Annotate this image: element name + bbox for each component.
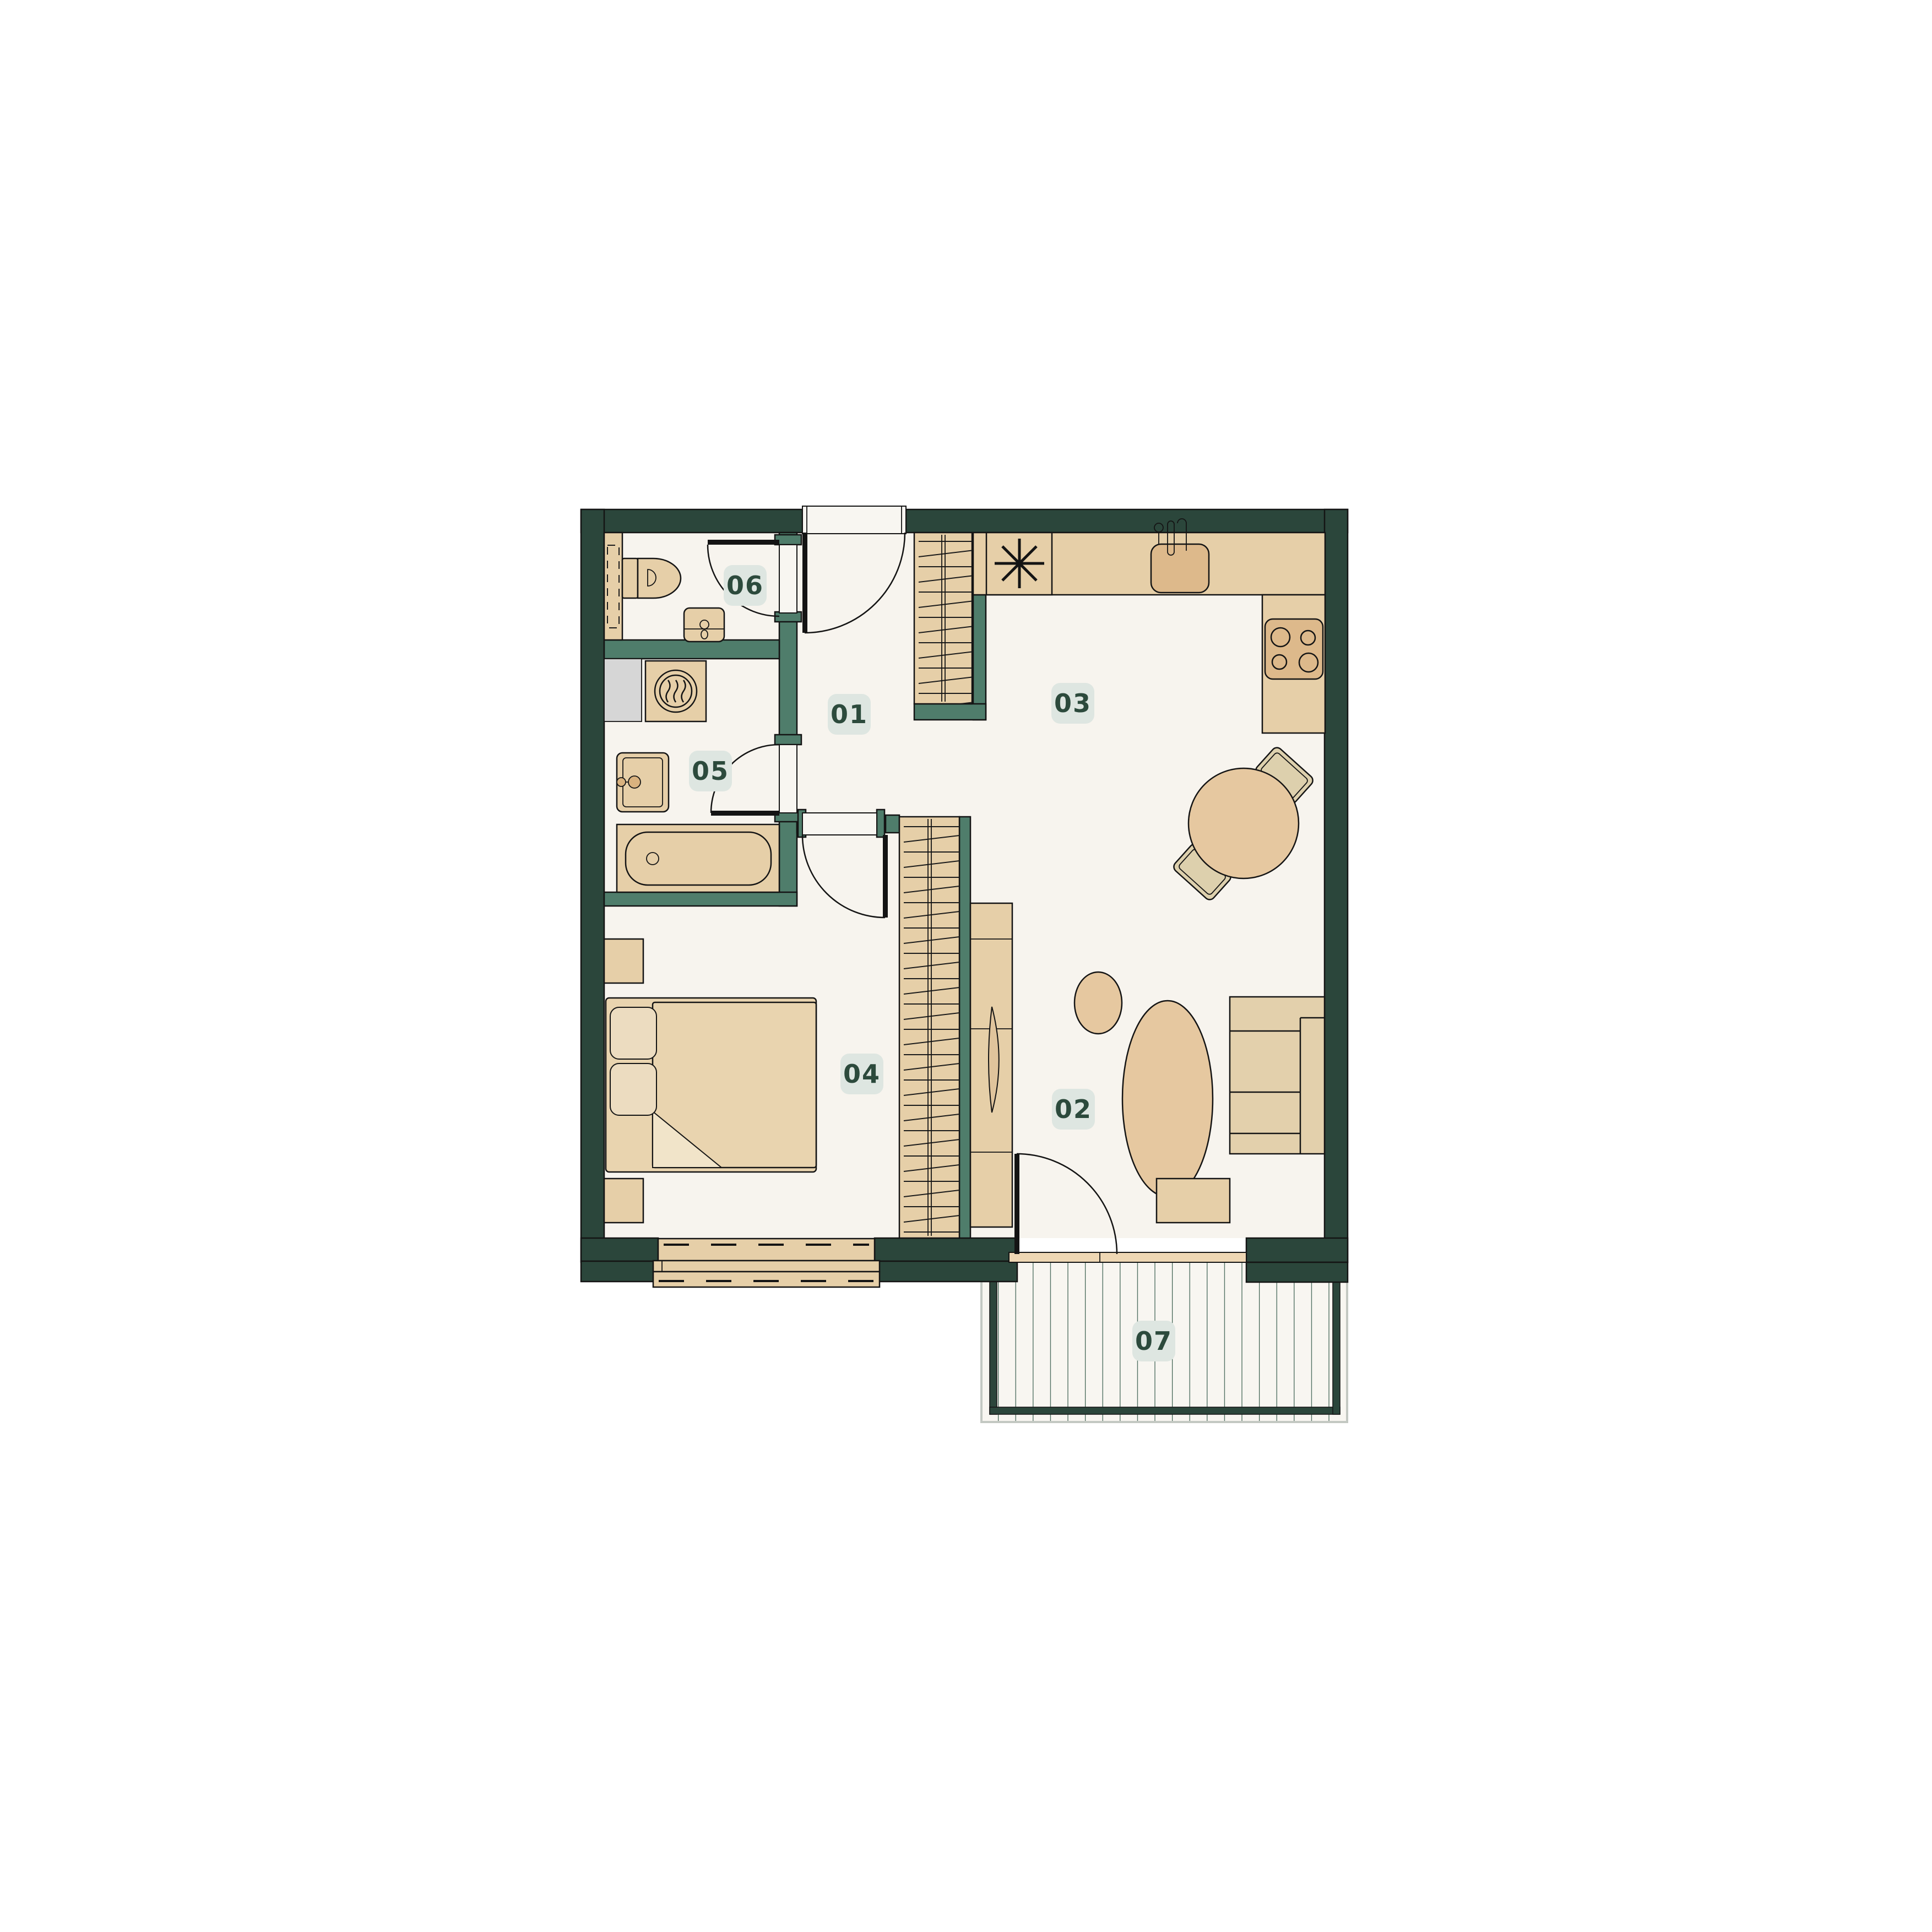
wall-segment — [581, 1238, 658, 1261]
tv-unit-icon — [970, 903, 1012, 1227]
door-leaf — [708, 540, 779, 545]
toilet-tank — [622, 558, 638, 598]
label-text: 06 — [726, 571, 764, 600]
kitchen-sink-basin — [1151, 544, 1209, 593]
partition-segment — [973, 595, 986, 720]
fridge-icon — [986, 533, 1052, 595]
floor-plan: 01 02 03 04 05 06 07 — [0, 0, 1932, 1932]
dining-table-icon — [1188, 768, 1299, 878]
shaft-gray — [604, 659, 642, 721]
room-label-02: 02 — [1052, 1089, 1095, 1130]
door-opening — [802, 813, 877, 835]
wall-segment — [906, 509, 1348, 533]
partition-segment — [604, 892, 797, 906]
door-opening — [779, 745, 797, 813]
door-leaf — [711, 811, 779, 816]
partition-segment — [779, 613, 797, 745]
window-sill-upper — [658, 1239, 875, 1261]
pouf-icon — [1074, 972, 1122, 1034]
wall-segment — [1325, 509, 1348, 1262]
window-sill-lower — [653, 1272, 880, 1287]
wardrobe-hatch — [899, 817, 959, 1238]
stove-icon — [1265, 619, 1323, 679]
washbasin-cabinet-icon — [684, 608, 724, 642]
wardrobe-hatch — [914, 533, 972, 704]
bedroom-window — [653, 1239, 880, 1287]
door-leaf — [883, 835, 888, 918]
label-text: 02 — [1055, 1094, 1092, 1124]
sink-knob — [628, 776, 641, 788]
room-label-05: 05 — [689, 751, 732, 791]
label-text: 04 — [843, 1059, 881, 1089]
balcony-threshold — [1009, 1252, 1246, 1262]
label-text: 01 — [831, 699, 868, 729]
sofa-body — [1230, 997, 1325, 1154]
partition-segment — [886, 815, 899, 833]
balcony-railing-left — [990, 1262, 997, 1414]
window-sill-mid — [653, 1261, 880, 1272]
pillow — [610, 1007, 656, 1059]
bathtub-outer — [617, 824, 779, 892]
room-label-01: 01 — [828, 694, 871, 735]
bathtub-icon — [617, 824, 779, 892]
balcony-railing-bottom — [990, 1407, 1340, 1414]
pillow — [610, 1063, 656, 1115]
partition-segment — [959, 817, 970, 1238]
partition-segment — [604, 640, 779, 659]
wall-base-block — [1246, 1262, 1348, 1282]
washbasin-cabinet — [684, 608, 724, 642]
label-text: 05 — [692, 756, 729, 786]
nightstand-icon — [604, 1179, 643, 1223]
rug-icon — [1122, 1001, 1213, 1197]
wall-segment — [875, 1238, 1017, 1261]
partition-segment — [914, 704, 986, 720]
room-label-04: 04 — [840, 1054, 883, 1094]
nightstand-icon — [604, 939, 643, 983]
toilet-icon — [622, 558, 681, 598]
wall-segment — [581, 509, 802, 533]
room-label-06: 06 — [724, 565, 767, 606]
room-label-07: 07 — [1132, 1321, 1175, 1361]
balcony-railing-right — [1333, 1282, 1340, 1414]
wall-segment — [1246, 1238, 1348, 1262]
bathroom-sink-icon — [617, 753, 669, 812]
bed-icon — [606, 998, 816, 1172]
washing-machine-icon — [645, 661, 706, 721]
wall-segment — [581, 509, 604, 1262]
sofa-icon — [1230, 997, 1325, 1154]
hall-wardrobe-icon — [914, 533, 972, 704]
bedroom-wardrobe-icon — [899, 817, 959, 1238]
entrance-frame — [802, 506, 906, 534]
coffee-table-icon — [1157, 1179, 1230, 1223]
door-jamb — [877, 810, 884, 837]
sink-knob — [617, 778, 626, 786]
room-label-03: 03 — [1051, 683, 1094, 724]
door-leaf — [802, 533, 807, 633]
label-text: 03 — [1054, 688, 1092, 718]
duct-shaft — [604, 533, 622, 640]
door-leaf — [1014, 1154, 1019, 1254]
door-jamb — [775, 735, 801, 745]
label-text: 07 — [1135, 1326, 1173, 1356]
door-opening — [779, 545, 797, 613]
